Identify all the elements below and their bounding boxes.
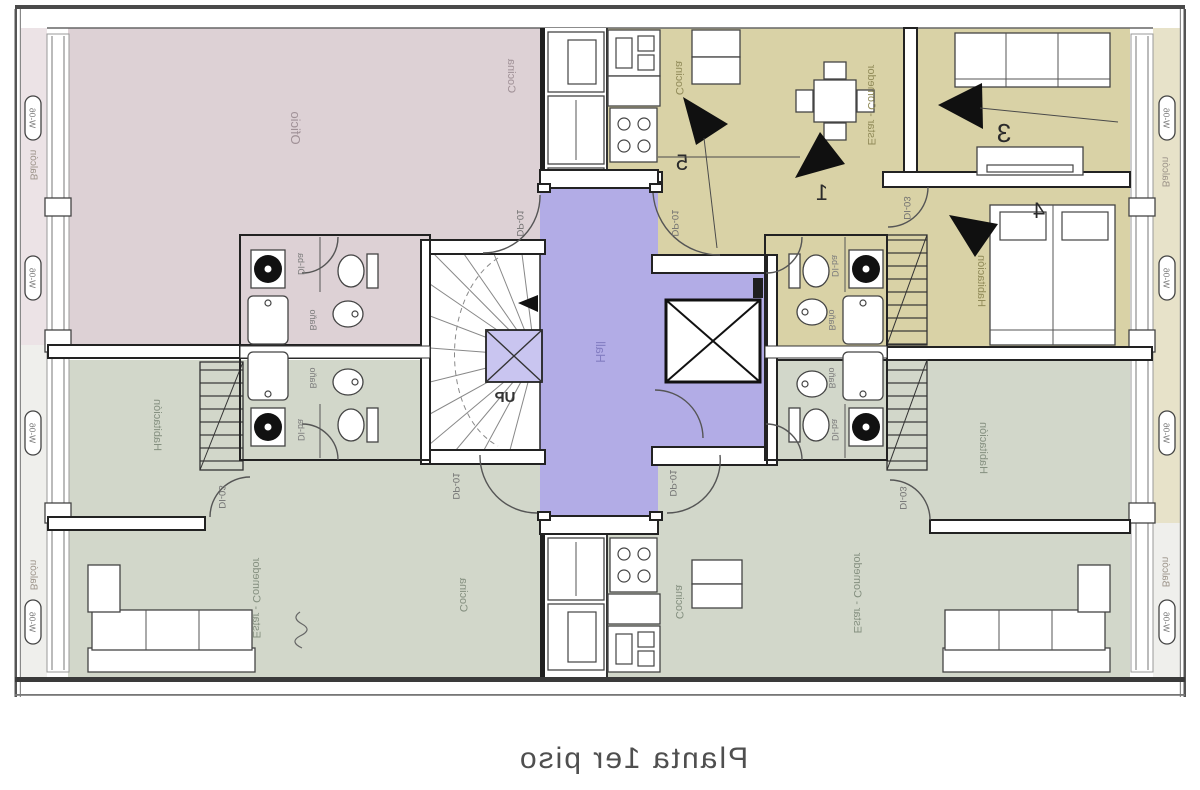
door-label-dp01-br: DP-01 <box>450 473 461 500</box>
bed-room4 <box>990 205 1115 345</box>
outer-wall-bottom <box>15 677 1185 682</box>
label-oficio: Oficio <box>288 111 303 144</box>
window-label-w06: W-06 <box>1162 108 1172 128</box>
balcony-label: Balcón <box>28 560 39 591</box>
label-cocina-br: Cocina <box>457 577 469 612</box>
label-estar-tan: Estar - Comedor <box>865 64 877 145</box>
window-label-w06: W-06 <box>1162 423 1172 443</box>
kitchen-wall-top <box>540 28 545 170</box>
window-label-w06: W-06 <box>28 268 38 288</box>
balcony-label: Balcón <box>1160 157 1171 188</box>
bed-room3 <box>955 33 1110 87</box>
toilet-2 <box>803 409 829 441</box>
stove-bottom <box>610 538 657 592</box>
sink-1 <box>843 296 883 344</box>
label-estar-bl: Estar - Comedor <box>851 552 863 633</box>
lobby-wall-left <box>767 255 777 465</box>
sink-3 <box>248 296 288 344</box>
closet-bottom-left <box>887 360 927 470</box>
closet-top <box>887 235 927 345</box>
wall-br-habitacion <box>48 517 205 530</box>
door-label-di03-br: DI-03 <box>216 485 227 508</box>
balcony-label: Balcón <box>28 150 39 181</box>
hall-label: Hall <box>593 341 607 363</box>
window-label-w06: W-06 <box>28 423 38 443</box>
stair-wall-top <box>422 240 545 254</box>
stair-up-label: UP <box>495 389 516 406</box>
label-bano-4: Baño <box>308 367 318 388</box>
wall-bl-habitacion <box>930 520 1130 533</box>
window-label-w06: W-06 <box>1162 268 1172 288</box>
outer-wall-top <box>15 5 1185 9</box>
label-habitacion-bl: Habitación <box>977 422 989 474</box>
toilet-3 <box>338 255 364 287</box>
door-label-dp01-tl: DP-01 <box>669 210 680 237</box>
lobby-door-jamb <box>753 278 763 298</box>
sink-2 <box>843 352 883 400</box>
toilet-4-tank <box>367 408 378 442</box>
door-label-dp01-bl: DP-01 <box>667 470 678 497</box>
label-bano-2: Baño <box>827 367 837 388</box>
toilet-1 <box>803 255 829 287</box>
label-bano-3: Baño <box>308 309 318 330</box>
label-diba-3: DI-ba <box>296 253 306 275</box>
balcony-label: Balcón <box>1160 557 1171 588</box>
hall-wall-bottom <box>540 516 658 534</box>
plan-caption: Planta 1er piso <box>518 742 748 775</box>
label-diba-4: DI-ba <box>296 419 306 441</box>
label-diba-1: DI-ba <box>830 255 840 277</box>
lobby-wall-bottom <box>652 447 777 465</box>
label-bano-1: Baño <box>827 309 837 330</box>
label-cocina-bl: Cocina <box>673 584 685 619</box>
view-marker-5-number: 5 <box>676 150 688 175</box>
view-marker-3-number: 3 <box>997 118 1011 148</box>
floor-plan-page: UP DP-01 DP-01 DP-01 DP-01 Hall DI-03 <box>0 0 1200 790</box>
label-diba-2: DI-ba <box>830 419 840 441</box>
stair-wall-bottom <box>422 450 545 464</box>
label-habitacion-br: Habitación <box>151 399 163 451</box>
stair-landing <box>486 330 542 382</box>
mirrored-plan-group: UP DP-01 DP-01 DP-01 DP-01 Hall DI-03 <box>15 5 1187 775</box>
toilet-3-tank <box>367 254 378 288</box>
label-cocina-tan: Cocina <box>673 60 685 95</box>
staircase: UP <box>421 240 545 464</box>
label-habitacion-tan: Habitación <box>975 255 987 307</box>
window-label-w06: W-06 <box>1162 612 1172 632</box>
door-label-dp01-tr: DP-01 <box>514 210 525 237</box>
elevator-shaft <box>666 300 760 382</box>
view-marker-1-number: 1 <box>816 180 828 205</box>
closet-bottom-right <box>200 362 243 470</box>
door-label-di03-room4: DI-03 <box>901 196 912 219</box>
hall-wall-top <box>540 170 658 188</box>
toilet-4 <box>338 409 364 441</box>
stove-top <box>610 108 657 162</box>
wall-room3-estar <box>904 28 917 176</box>
dresser-room3 <box>977 147 1083 175</box>
label-cocina-pink: Cocina <box>505 58 517 93</box>
kitchen-cabinets-bottom <box>548 538 604 670</box>
floor-plan-drawing: UP DP-01 DP-01 DP-01 DP-01 Hall DI-03 <box>0 0 1200 790</box>
kitchen-wall-bottom <box>540 516 545 677</box>
sink-4 <box>248 352 288 400</box>
window-label-w06: W-06 <box>28 108 38 128</box>
window-label-w06: W-06 <box>28 612 38 632</box>
door-label-di03-bl: DI-03 <box>897 486 908 509</box>
view-marker-4-number: 4 <box>1033 198 1045 223</box>
lobby-wall-top <box>652 255 777 273</box>
